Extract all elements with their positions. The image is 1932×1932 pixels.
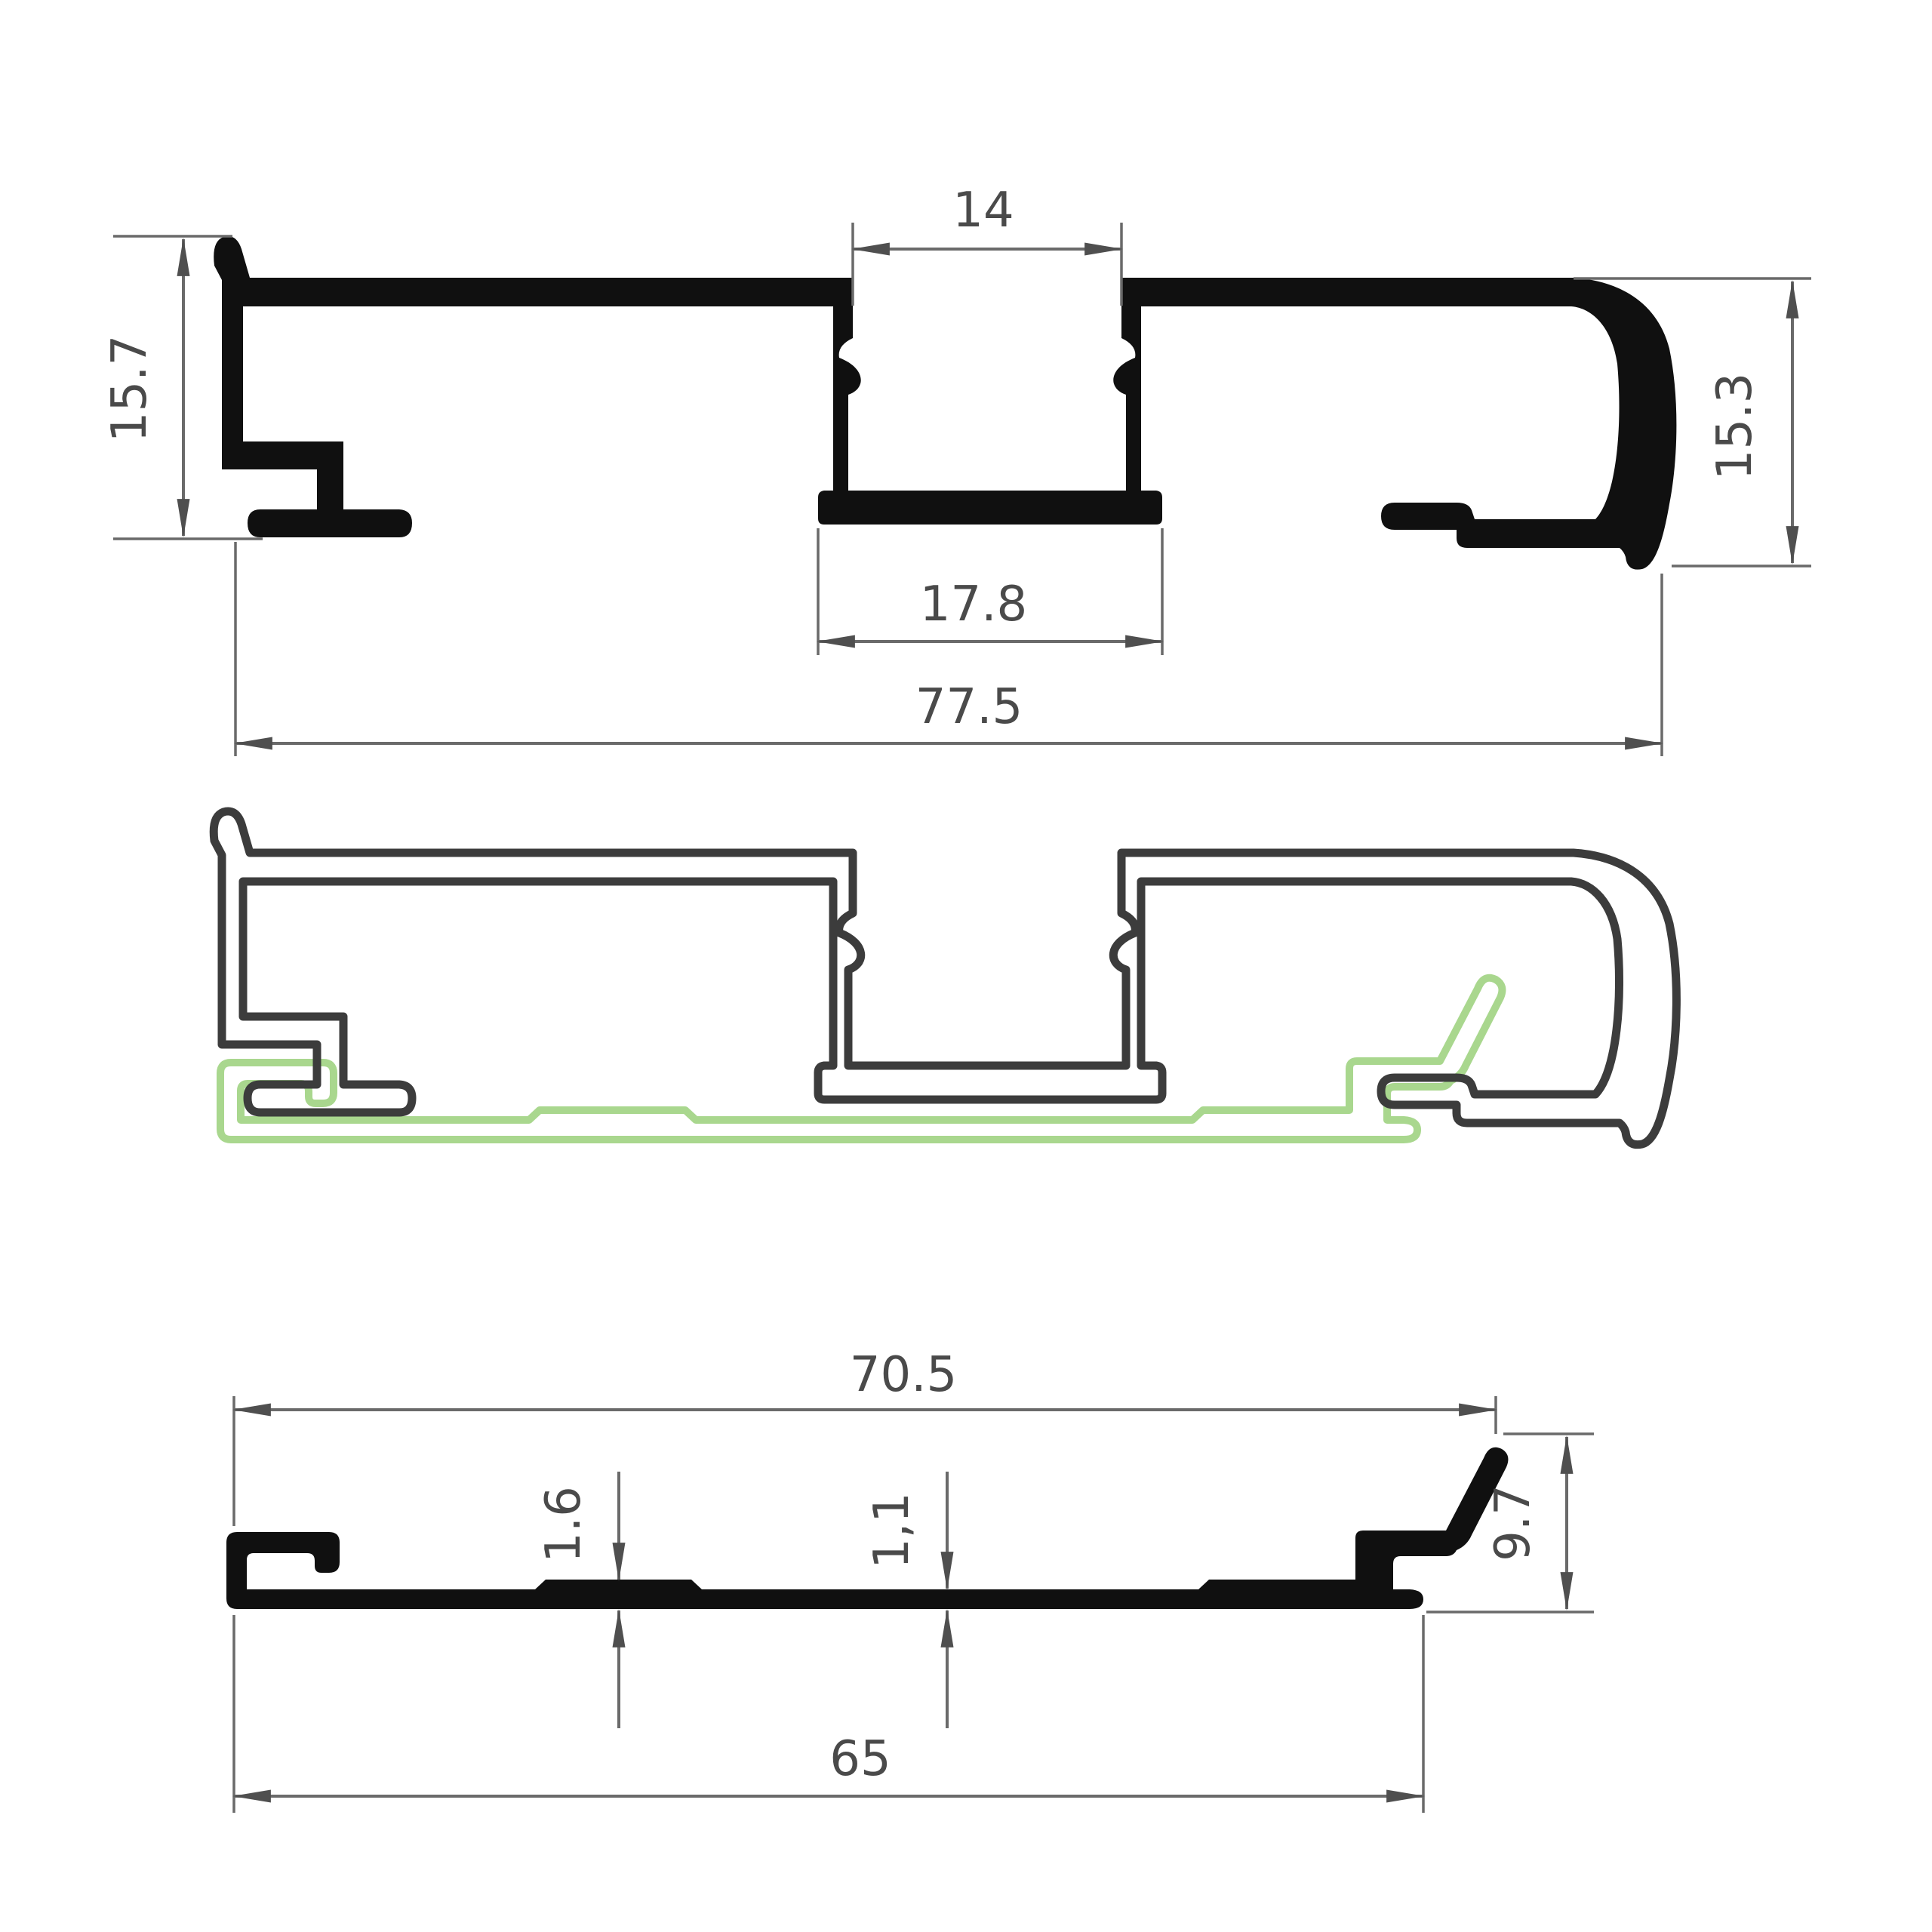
technical-drawing: 14 15.7 15.3 17.8 77.5 bbox=[0, 0, 1932, 1932]
dim-label-65: 65 bbox=[829, 1731, 891, 1787]
dim-label-15-3: 15.3 bbox=[1707, 373, 1763, 481]
dim-label-77-5: 77.5 bbox=[915, 679, 1023, 735]
dim-label-70-5: 70.5 bbox=[850, 1347, 958, 1403]
dim-label-1-6: 1.6 bbox=[536, 1486, 592, 1563]
dim-label-15-7: 15.7 bbox=[102, 335, 158, 443]
dim-label-9-7: 9.7 bbox=[1485, 1484, 1541, 1561]
dim-label-1-1: 1,1 bbox=[864, 1492, 920, 1569]
drawing-canvas: 14 15.7 15.3 17.8 77.5 bbox=[0, 0, 1932, 1932]
dim-label-17-8: 17.8 bbox=[920, 577, 1028, 632]
dim-label-14: 14 bbox=[952, 183, 1014, 238]
